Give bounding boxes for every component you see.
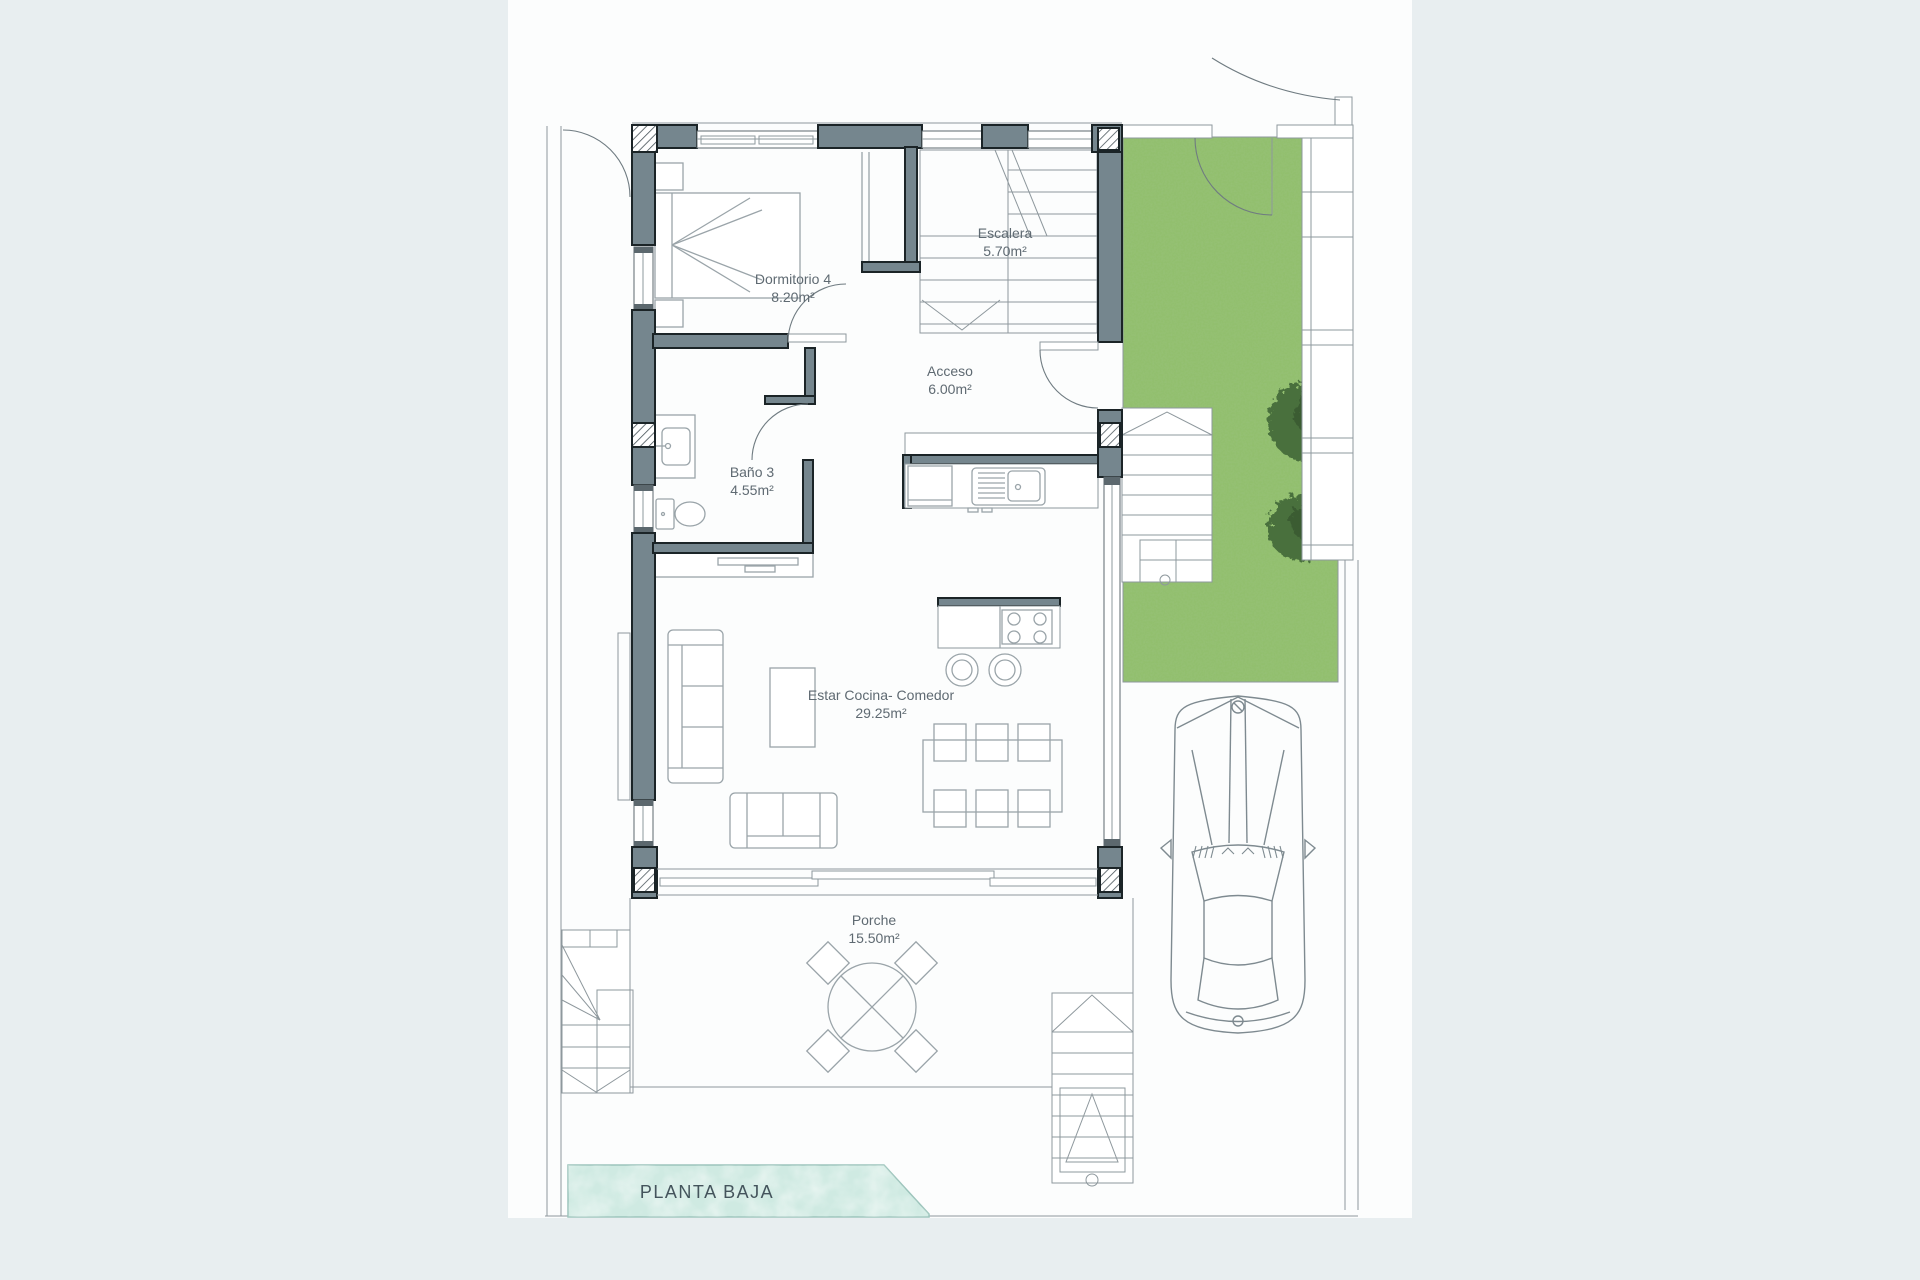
nightstand (655, 300, 683, 327)
room-area-estar: 29.25m² (855, 705, 907, 721)
nightstand (655, 163, 683, 190)
pillar-hatched (632, 423, 655, 447)
wall-bath-bottom (653, 543, 813, 553)
right-fence-panels (1302, 138, 1353, 560)
coffee-table (770, 668, 815, 747)
tv-cabinet (653, 553, 813, 577)
stairs-side-garden (1122, 408, 1212, 585)
room-label-porche: Porche (852, 912, 897, 928)
wall-bedroom-bottom (653, 334, 788, 348)
bath-sink (655, 415, 695, 478)
floor-plan-svg: PLANTA BAJA (0, 0, 1920, 1280)
sofa (668, 630, 723, 783)
door-leaf (788, 334, 846, 342)
stool (946, 654, 978, 686)
pillar-hatched (634, 868, 655, 892)
pillar-hatched (1098, 128, 1119, 150)
wall-bedroom-stairs (905, 147, 917, 268)
plan-title: PLANTA BAJA (640, 1182, 774, 1202)
sofa-small (730, 793, 837, 848)
room-area-acceso: 6.00m² (928, 381, 972, 397)
room-area-bano: 4.55m² (730, 482, 774, 498)
pillar-hatched (1100, 423, 1120, 447)
kitchen-counter (903, 433, 1100, 512)
room-label-estar: Estar Cocina- Comedor (808, 687, 955, 703)
entrance-door-leaf (1040, 342, 1098, 350)
room-label-escalera: Escalera (978, 225, 1033, 241)
room-label-acceso: Acceso (927, 363, 973, 379)
floor-plan-page: PLANTA BAJA (0, 0, 1920, 1280)
room-area-dormitorio: 8.20m² (771, 289, 815, 305)
pillar-hatched (632, 125, 657, 152)
room-label-bano: Baño 3 (730, 464, 775, 480)
stairs-left-exterior (562, 930, 633, 1093)
room-area-porche: 15.50m² (848, 930, 900, 946)
counter-back-wall (903, 455, 1100, 464)
pillar-hatched (1100, 868, 1120, 892)
room-label-dormitorio: Dormitorio 4 (755, 271, 831, 287)
stool (989, 654, 1021, 686)
stairs-middle-exterior (1052, 993, 1133, 1186)
room-area-escalera: 5.70m² (983, 243, 1027, 259)
